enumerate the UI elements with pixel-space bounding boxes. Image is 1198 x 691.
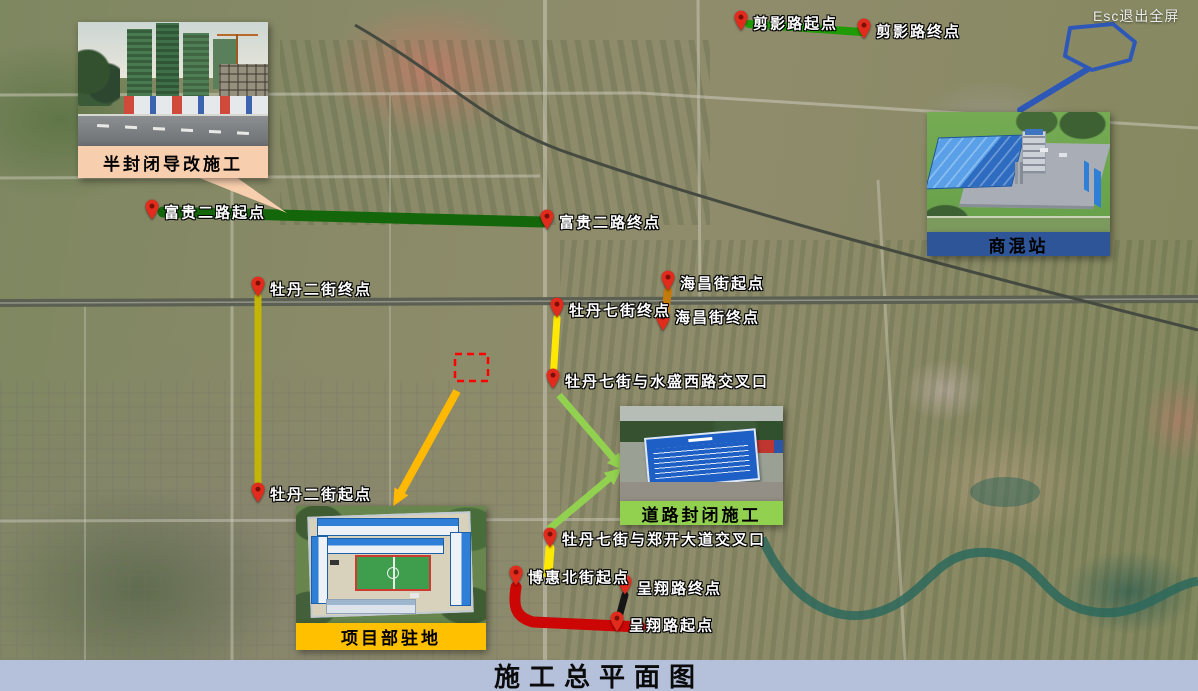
court-center-circle (387, 567, 399, 579)
marker-label-jianying-start: 剪影路起点 (753, 13, 838, 34)
marker-label-mudan2-start: 牡丹二街起点 (270, 484, 372, 505)
marker-label-haichang-start: 海昌街起点 (680, 273, 765, 294)
mixing-tower (1022, 131, 1046, 174)
pin-body (541, 210, 554, 230)
diversion-label: 半封闭导改施工 (78, 146, 268, 178)
pin-body (146, 200, 159, 220)
pin-dot (256, 281, 261, 286)
marker-label-haichang-end: 海昌街终点 (675, 307, 760, 328)
marker-label-mudan7-end: 牡丹七街终点 (569, 300, 671, 321)
marker-label-zhengkai-junction: 牡丹七街与郑开大道交叉口 (562, 529, 766, 550)
photo-road (620, 482, 783, 501)
pin-body (858, 19, 871, 39)
mixing-tower-cap (1025, 129, 1043, 136)
photo-construction-hoarding (124, 96, 268, 115)
photo-crane-mast (236, 34, 238, 66)
map-pin-fugui-end (540, 209, 555, 230)
marker-label-bohui-start: 博惠北街起点 (528, 567, 630, 588)
pin-dot (256, 487, 261, 492)
title-bar: 施工总平面图 (0, 660, 1198, 691)
camp-car (410, 593, 419, 598)
photo-green-tower (156, 23, 179, 100)
pin-body (252, 483, 265, 503)
closure-label-text: 道路封闭施工 (642, 501, 762, 526)
photo-notice-board (644, 428, 760, 489)
map-pin-mudan2-end (251, 276, 266, 297)
map-pin-mudan7-end (550, 297, 565, 318)
map-pin-haichang-start (661, 270, 676, 291)
pin-body (735, 11, 748, 31)
mixing-truck (1040, 148, 1048, 152)
map-pin-fugui-start (145, 199, 160, 220)
mixing-site-connector (1020, 69, 1088, 110)
camp-building-west (311, 536, 328, 604)
diversion-photo (78, 22, 268, 146)
pin-body (510, 566, 523, 586)
pin-body (611, 612, 624, 632)
photo-green-tower (183, 33, 210, 97)
camp-building-south (326, 599, 415, 614)
mixing-front-road (927, 216, 1110, 232)
marker-label-chengxiang-start: 呈翔路起点 (629, 615, 714, 636)
camp-building-row2 (325, 538, 445, 554)
pin-dot (548, 532, 553, 537)
marker-label-fugui-end: 富贵二路终点 (559, 212, 661, 233)
pin-dot (545, 214, 550, 219)
page-title: 施工总平面图 (494, 657, 704, 691)
marker-label-chengxiang-end: 呈翔路终点 (637, 578, 722, 599)
pin-body (547, 369, 560, 389)
camp-building-east (450, 532, 471, 607)
map-pin-zhengkai-junction (543, 527, 558, 548)
pin-dot (555, 302, 560, 307)
camp-render (296, 506, 486, 623)
pin-dot (739, 15, 744, 20)
pin-body (662, 271, 675, 291)
diversion-label-text: 半封闭导改施工 (103, 150, 243, 175)
camp-label: 项目部驻地 (296, 623, 486, 650)
camp-label-text: 项目部驻地 (341, 624, 441, 649)
photo-curb-line (78, 114, 268, 116)
map-pin-jianying-end (857, 18, 872, 39)
fullscreen-exit-hint: Esc退出全屏 (1093, 6, 1179, 26)
construction-plan-canvas: 半封闭导改施工 项目部驻地 (0, 0, 1198, 691)
marker-label-fugui-start: 富贵二路起点 (164, 202, 266, 223)
mixing-warehouse-roof (927, 135, 1026, 190)
mixing-blue-panel (1084, 161, 1089, 193)
map-pin-jianying-start (734, 10, 749, 31)
camp-arrow (400, 391, 457, 494)
photo-roadside-trees (78, 49, 120, 106)
closure-arrow-lower (549, 477, 611, 529)
map-pin-bohui-start (509, 565, 524, 586)
camp-location-dashed-box (455, 354, 488, 381)
mixing-blue-panel (1094, 167, 1101, 207)
marker-label-jianying-end: 剪影路终点 (876, 21, 961, 42)
closure-arrow-upper (559, 395, 615, 460)
mixing-label-text: 商混站 (989, 232, 1049, 257)
camp-car (330, 560, 339, 565)
pin-dot (666, 275, 671, 280)
closure-photo (620, 406, 783, 501)
pin-dot (615, 616, 620, 621)
pin-body (252, 277, 265, 297)
notice-title-line (688, 436, 712, 441)
mixing-truck (1059, 153, 1067, 157)
photo-building-frame (219, 64, 268, 99)
camp-building-north (317, 518, 460, 536)
map-pin-mudan2-start (251, 482, 266, 503)
notice-text-lines (654, 441, 751, 479)
mixing-site-outline (1065, 24, 1135, 70)
mixing-label: 商混站 (927, 232, 1110, 256)
pin-body (551, 298, 564, 318)
pin-dot (551, 373, 556, 378)
closure-label: 道路封闭施工 (620, 501, 783, 525)
pin-dot (862, 23, 867, 28)
marker-label-mudan2-end: 牡丹二街终点 (270, 279, 372, 300)
pin-dot (150, 204, 155, 209)
map-pin-shuisheng-junction (546, 368, 561, 389)
mixing-render (927, 112, 1110, 232)
mixing-silo (1020, 162, 1023, 184)
mixing-silo (1015, 162, 1018, 184)
pin-dot (514, 570, 519, 575)
photo-green-tower (127, 29, 152, 98)
pin-body (544, 528, 557, 548)
camp-basketball-court (355, 555, 431, 591)
map-pin-chengxiang-start (610, 611, 625, 632)
marker-label-shuisheng-junction: 牡丹七街与水盛西路交叉口 (565, 371, 769, 392)
